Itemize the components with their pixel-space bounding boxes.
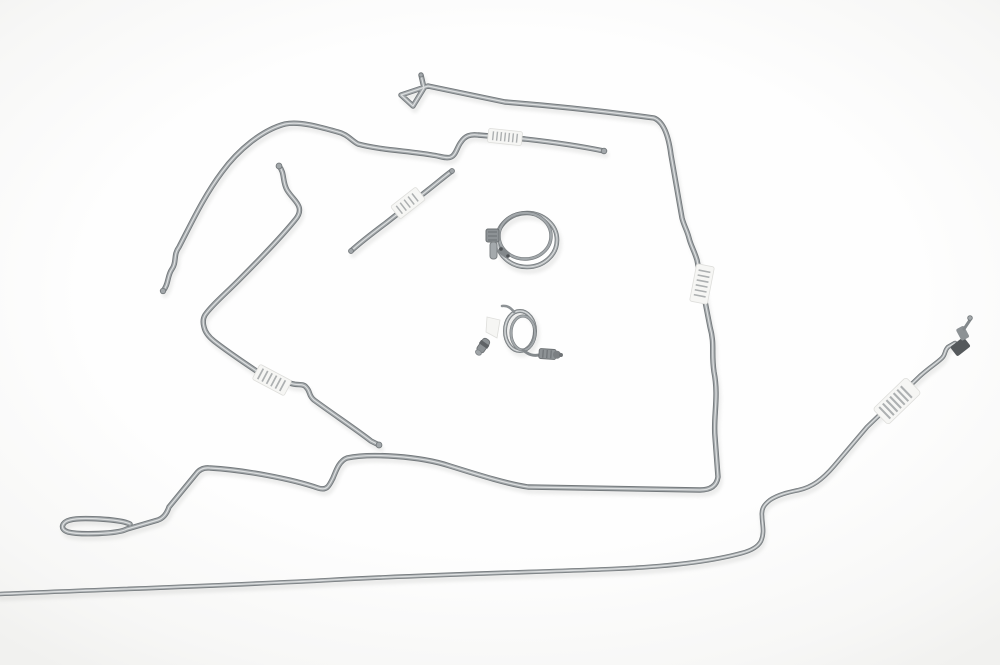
small-coiled-hose: small coiled hose [473, 306, 563, 360]
angled-end-fitting [473, 337, 492, 358]
open-end-left [160, 288, 165, 293]
center-jumper-line: short center jumper line [349, 169, 455, 255]
coil-top-tail [502, 306, 514, 312]
ridged-end-fitting [539, 348, 564, 360]
barcode-label-vapor-line [252, 364, 292, 396]
white-tag [486, 317, 500, 338]
open-end-right [601, 148, 607, 154]
barcode-label-return-line [487, 128, 522, 145]
brake-line-kit-photo: main front-to-rear line upper return lin… [0, 0, 1000, 665]
flared-end-bottom [376, 442, 382, 448]
barcode-label-main-line [690, 264, 715, 305]
flared-end-top [276, 163, 282, 169]
tube-nut-fitting [950, 316, 972, 357]
product-photo-stage: main front-to-rear line upper return lin… [0, 0, 1000, 665]
flare-tip [968, 316, 973, 321]
large-coiled-hose: large coiled hose [486, 213, 559, 271]
jumper-end-lower [349, 249, 354, 254]
left-vapor-line: left vapor line [203, 163, 382, 449]
hook-end-nub [419, 73, 423, 77]
jumper-end-upper [450, 169, 455, 174]
main-line: main front-to-rear line [62, 73, 720, 538]
rear-long-line: rear long line [0, 316, 972, 598]
